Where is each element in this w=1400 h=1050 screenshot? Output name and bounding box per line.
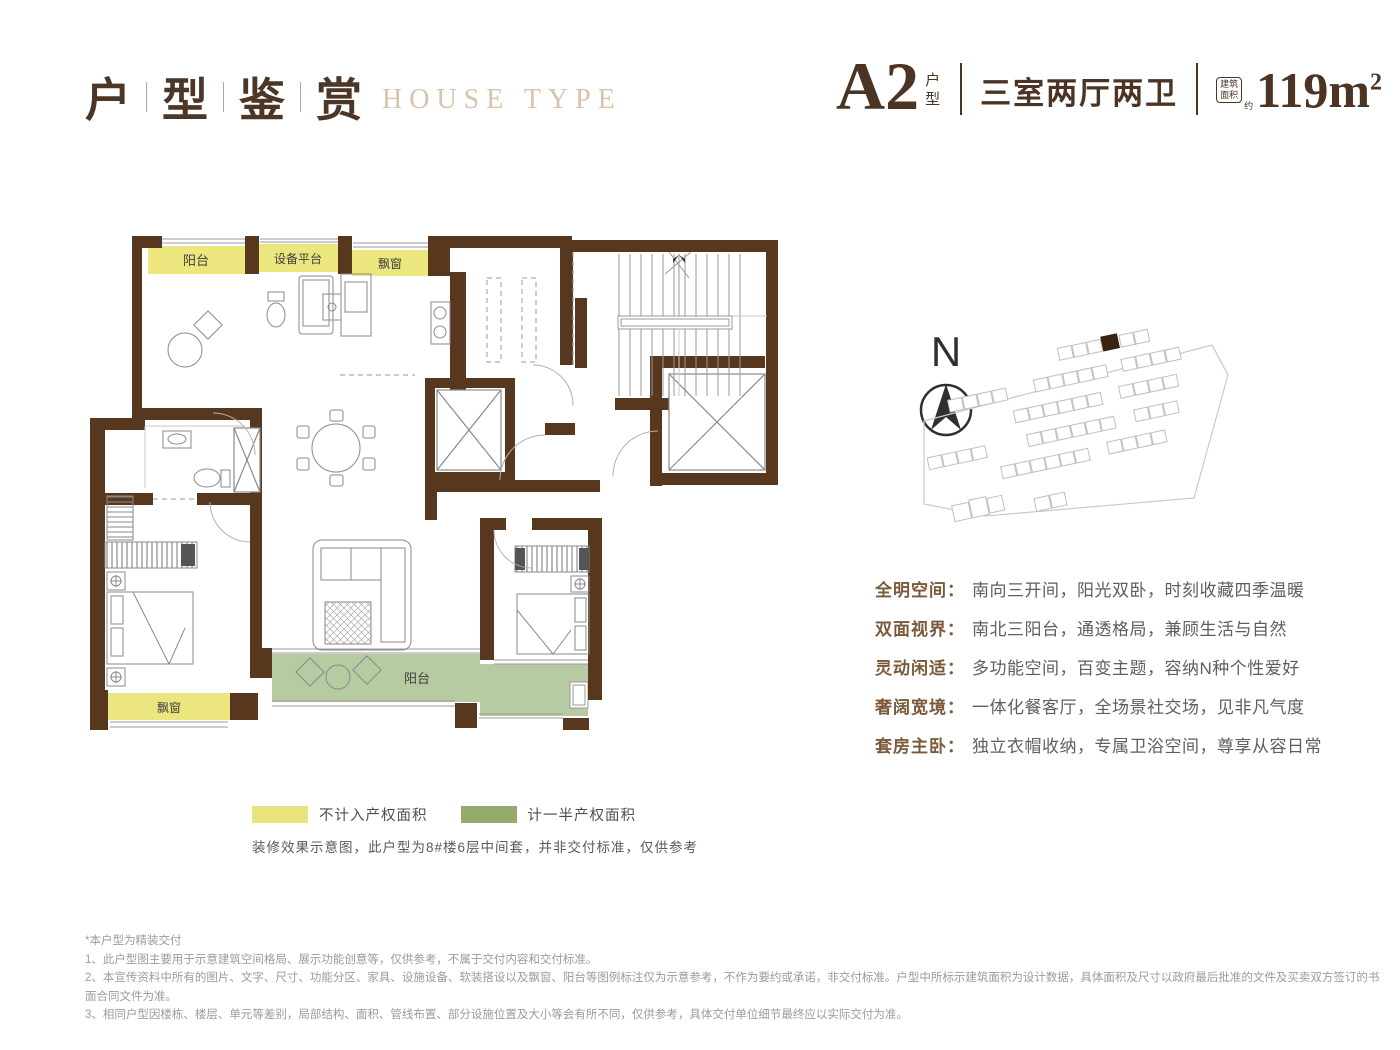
title-char: 赏: [316, 64, 362, 130]
title-separator: [223, 82, 224, 112]
feature-label: 奢阔宽境: [875, 693, 947, 718]
feature-label: 灵动闲适: [875, 654, 947, 679]
disclaimer-line: 面合同文件为准。: [85, 988, 1379, 1007]
legend-swatch-yellow: [252, 806, 308, 823]
feature-label: 双面视界: [875, 615, 947, 640]
disclaimer-line: *本户型为精装交付: [85, 932, 1379, 951]
feature-label: 套房主卧: [875, 732, 947, 757]
wardrobe-bed2: [515, 546, 589, 572]
siteplan-svg: N: [898, 318, 1243, 533]
study-table: [168, 333, 202, 367]
legend-label: 计一半产权面积: [528, 804, 637, 825]
feature-text: 独立衣帽收纳，专属卫浴空间，尊享从容日常: [972, 732, 1322, 757]
kitchen-sink: [345, 282, 367, 312]
study-chair: [194, 311, 222, 339]
area-superscript: 2: [1370, 69, 1382, 95]
toilet-bowl: [267, 303, 285, 327]
area-group: 建筑 面积 约 119m2: [1216, 65, 1382, 115]
header-divider: [960, 63, 962, 115]
page-title: 户型鉴赏 HOUSE TYPE: [85, 64, 622, 130]
feature-text: 一体化餐客厅，全场景社交场，见非凡气度: [972, 693, 1305, 718]
unit-header: A2 户型 三室两厅两卫 建筑 面积 约 119m2: [836, 52, 1382, 120]
feature-row: 奢阔宽境： 一体化餐客厅，全场景社交场，见非凡气度: [875, 693, 1322, 732]
area-badge: 建筑 面积: [1216, 77, 1242, 104]
feature-text: 南向三开间，阳光双卧，时刻收藏四季温暖: [972, 576, 1305, 601]
title-separator: [300, 82, 301, 112]
bath-sink: [323, 294, 341, 320]
title-char: 鉴: [239, 64, 285, 130]
legend-label: 不计入产权面积: [319, 804, 428, 825]
area-badge-line: 建筑: [1220, 79, 1238, 90]
disclaimer-line: 3、相同户型因楼栋、楼层、单元等差别，局部结构、面积、管线布置、部分设施位置及大…: [85, 1006, 1379, 1025]
feature-row: 全明空间： 南向三开间，阳光双卧，时刻收藏四季温暖: [875, 576, 1322, 615]
feature-label: 全明空间: [875, 576, 947, 601]
title-char: 型: [162, 64, 208, 130]
header-divider: [1196, 63, 1198, 115]
disclaimer-line: 1、此户型图主要用于示意建筑空间格局、展示功能创意等，仅供参考，不属于交付内容和…: [85, 951, 1379, 970]
title-char: 户: [85, 64, 131, 130]
feature-text: 多功能空间，百变主题，容纳N种个性爱好: [972, 654, 1300, 679]
floorplan-svg: 阳台 设备平台 飘窗 飘窗 阳台: [85, 230, 785, 735]
duct-shaft-icon: [234, 428, 260, 492]
bed-2: [517, 594, 589, 654]
title-chinese: 户型鉴赏: [85, 64, 362, 130]
area-badge-line: 面积: [1220, 90, 1238, 101]
toilet-tank: [268, 292, 284, 301]
site-highlight-building: [1101, 334, 1120, 351]
title-separator: [146, 82, 147, 112]
radiator: [107, 496, 133, 540]
label-bay-window-top: 飘窗: [378, 257, 402, 271]
feature-list: 全明空间： 南向三开间，阳光双卧，时刻收藏四季温暖 双面视界： 南北三阳台，通透…: [875, 576, 1322, 771]
disclaimer-line: 2、本宣传资料中所有的图片、文字、尺寸、功能分区、家具、设施设备、软装搭设以及飘…: [85, 969, 1379, 988]
disclaimer: *本户型为精装交付 1、此户型图主要用于示意建筑空间格局、展示功能创意等，仅供参…: [85, 932, 1379, 1025]
label-balcony-top: 阳台: [183, 253, 209, 268]
rug: [325, 602, 371, 644]
area-value: 119m2: [1256, 65, 1382, 115]
area-approx: 约: [1244, 99, 1253, 115]
north-compass-icon: N: [921, 328, 971, 435]
unit-suffix: 户型: [925, 72, 942, 110]
msbath-toilet: [194, 469, 220, 487]
equipment-unit: [299, 276, 333, 334]
elevator-right-icon: [669, 374, 765, 470]
feature-row: 灵动闲适： 多功能空间，百变主题，容纳N种个性爱好: [875, 654, 1322, 693]
feature-text: 南北三阳台，通透格局，兼顾生活与自然: [972, 615, 1287, 640]
label-bay-window-bottom: 飘窗: [157, 701, 181, 715]
legend-note: 装修效果示意图，此户型为8#楼6层中间套，并非交付标准，仅供参考: [252, 836, 698, 856]
legend: 不计入产权面积 计一半产权面积: [252, 804, 636, 825]
page: 户型鉴赏 HOUSE TYPE A2 户型 三室两厅两卫 建筑 面积 约 119…: [0, 0, 1400, 1050]
feature-row: 套房主卧： 独立衣帽收纳，专属卫浴空间，尊享从容日常: [875, 732, 1322, 771]
unit-layout: 三室两厅两卫: [980, 68, 1178, 113]
label-equipment-platform: 设备平台: [274, 251, 322, 266]
dining-table: [312, 424, 360, 472]
elevator-left-icon: [437, 390, 501, 470]
label-balcony-bottom: 阳台: [404, 671, 430, 686]
legend-swatch-green: [461, 806, 517, 823]
unit-name: A2: [836, 52, 919, 120]
north-label: N: [931, 328, 961, 375]
feature-row: 双面视界： 南北三阳台，通透格局，兼顾生活与自然: [875, 615, 1322, 654]
title-english: HOUSE TYPE: [382, 78, 622, 116]
